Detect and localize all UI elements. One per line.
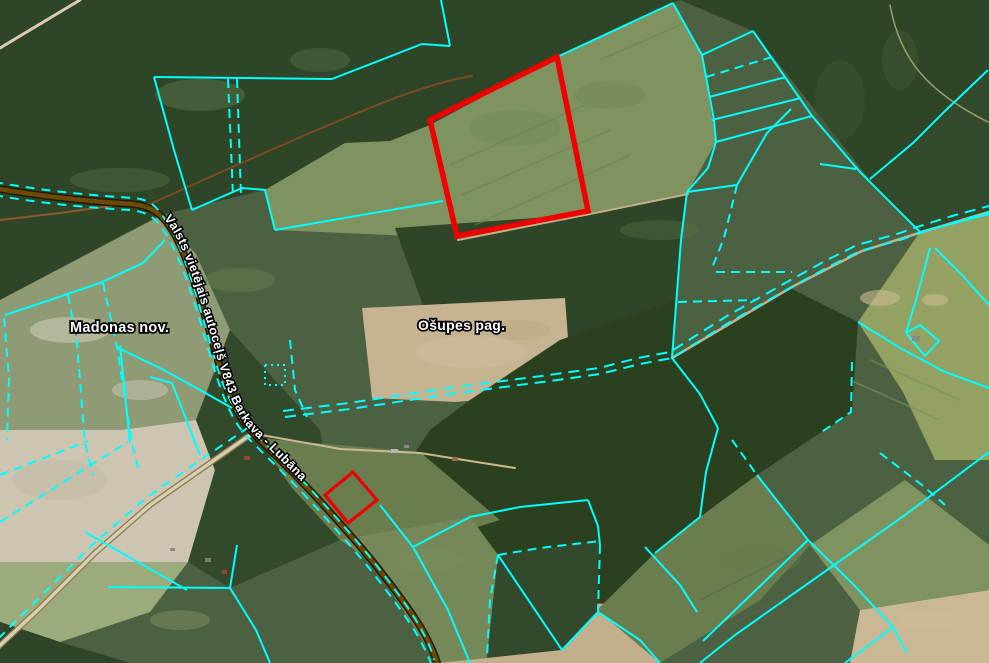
- terrain-blotch: [922, 294, 948, 306]
- terrain-blotch: [70, 168, 170, 192]
- terrain-blotch: [575, 81, 645, 109]
- cadastral-boundary-line: [108, 587, 230, 588]
- building: [222, 570, 227, 574]
- building: [205, 558, 211, 562]
- building: [452, 457, 458, 461]
- terrain-blotch: [155, 79, 245, 111]
- building: [912, 336, 920, 341]
- building: [391, 449, 398, 453]
- terrain-blotch: [860, 290, 900, 306]
- terrain-blotch: [900, 610, 960, 630]
- terrain-blotch: [290, 48, 350, 72]
- terrain-blotch: [12, 460, 108, 500]
- map-svg[interactable]: Madonas nov.Ošupes pag.Valsts vietējais …: [0, 0, 989, 663]
- terrain-blotch: [150, 610, 210, 630]
- terrain-blotch: [415, 336, 525, 368]
- municipality-label: Madonas nov.: [70, 320, 169, 336]
- parish-label: Ošupes pag.: [418, 317, 505, 333]
- terrain-blotch: [205, 268, 275, 292]
- building: [404, 445, 409, 448]
- terrain-blotch: [620, 220, 700, 240]
- map-viewport[interactable]: Madonas nov.Ošupes pag.Valsts vietējais …: [0, 0, 989, 663]
- terrain-blotch: [470, 110, 560, 146]
- terrain-blotch: [395, 548, 465, 572]
- building: [170, 548, 175, 551]
- building: [244, 456, 250, 460]
- terrain-blotch: [112, 380, 168, 400]
